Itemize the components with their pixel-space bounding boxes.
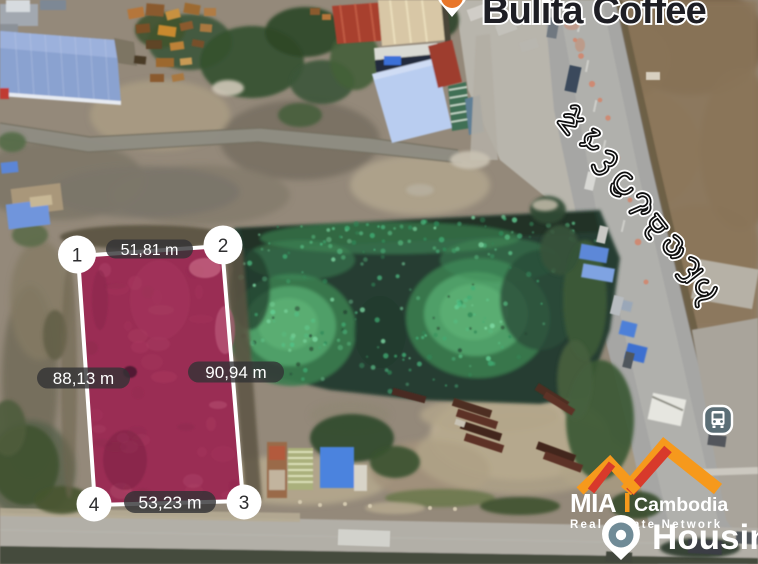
svg-text:4: 4: [89, 495, 100, 516]
svg-text:MIA: MIA: [570, 488, 617, 518]
svg-text:Bulita Coffee: Bulita Coffee: [482, 0, 706, 32]
svg-text:Housing: Housing: [652, 518, 758, 557]
svg-text:88,13 m: 88,13 m: [53, 369, 114, 388]
svg-text:2: 2: [218, 236, 229, 257]
svg-text:51,81 m: 51,81 m: [121, 242, 179, 259]
svg-text:90,94 m: 90,94 m: [205, 363, 266, 382]
svg-text:1: 1: [72, 245, 83, 266]
svg-text:3: 3: [239, 493, 250, 514]
svg-text:Cambodia: Cambodia: [634, 494, 728, 516]
svg-text:53,23 m: 53,23 m: [138, 492, 201, 512]
